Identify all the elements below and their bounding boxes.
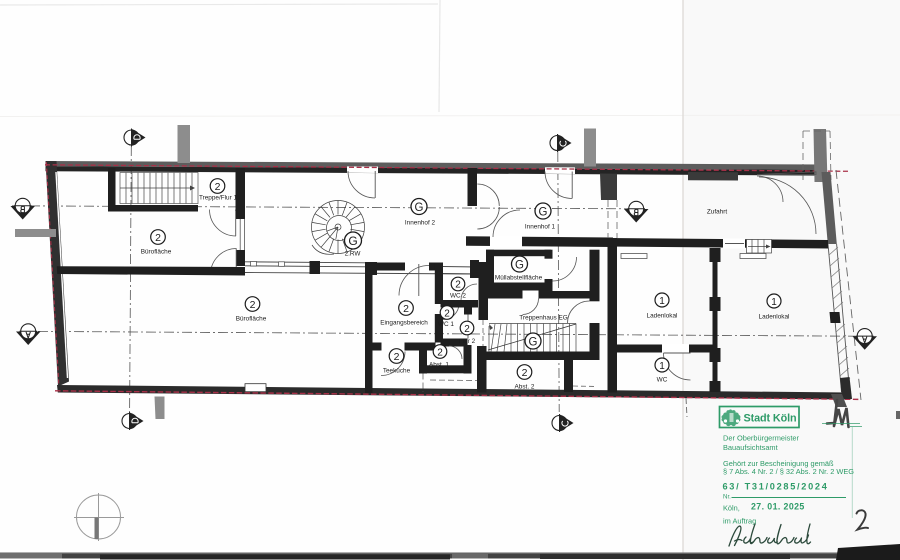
svg-text:2: 2: [464, 324, 470, 335]
svg-text:2: 2: [394, 351, 400, 363]
svg-text:Innenhof 2: Innenhof 2: [405, 220, 436, 227]
svg-text:WC 1: WC 1: [438, 321, 454, 328]
svg-text:Zufahrt: Zufahrt: [707, 209, 727, 216]
svg-text:Treppe/Flur 1: Treppe/Flur 1: [199, 195, 238, 202]
svg-text:2: 2: [522, 367, 528, 379]
svg-text:Eingangsbereich: Eingangsbereich: [380, 320, 428, 327]
svg-text:G: G: [515, 259, 524, 271]
svg-text:Nr.: Nr.: [723, 494, 731, 501]
svg-text:2: 2: [155, 232, 161, 244]
svg-text:Der Oberbürgermeister: Der Oberbürgermeister: [723, 434, 800, 443]
svg-text:Ladenlokal: Ladenlokal: [647, 313, 678, 320]
svg-text:1: 1: [659, 296, 665, 307]
svg-text:Bürofläche: Bürofläche: [141, 249, 172, 256]
svg-text:im Auftrag: im Auftrag: [723, 517, 756, 526]
svg-text:G: G: [539, 206, 548, 218]
svg-text:27. 01. 2025: 27. 01. 2025: [751, 502, 805, 512]
svg-text:2: 2: [455, 280, 461, 291]
svg-text:Flur 2: Flur 2: [459, 338, 476, 345]
svg-text:2.RW: 2.RW: [345, 251, 362, 258]
svg-text:G: G: [415, 202, 424, 214]
svg-text:2: 2: [250, 299, 256, 311]
svg-text:1: 1: [659, 361, 665, 372]
svg-text:2: 2: [215, 181, 221, 193]
svg-text:Treppenhaus EG: Treppenhaus EG: [519, 315, 567, 322]
svg-text:Abst. 1: Abst. 1: [429, 361, 449, 368]
svg-text:Innenhof 1: Innenhof 1: [525, 224, 556, 231]
svg-text:WC 2: WC 2: [450, 293, 466, 300]
svg-text:Abst. 2: Abst. 2: [515, 384, 535, 391]
svg-text:G: G: [348, 234, 357, 248]
svg-text:Müllabstellfläche: Müllabstellfläche: [495, 275, 543, 282]
svg-text:WC: WC: [657, 377, 668, 384]
svg-text:1: 1: [771, 297, 777, 308]
svg-text:G: G: [529, 336, 538, 348]
svg-text:Köln,: Köln,: [723, 504, 740, 513]
svg-text:2: 2: [403, 303, 409, 315]
svg-text:Teeküche: Teeküche: [383, 368, 411, 375]
svg-text:Stadt Köln: Stadt Köln: [744, 413, 797, 425]
svg-text:§ 7 Abs. 4 Nr. 2 / § 32 Abs. 2: § 7 Abs. 4 Nr. 2 / § 32 Abs. 2 Nr. 2 WEG: [723, 467, 854, 476]
svg-text:Ladenlokal: Ladenlokal: [759, 314, 790, 321]
svg-text:Bürofläche: Bürofläche: [236, 316, 267, 323]
svg-text:2: 2: [444, 308, 450, 319]
svg-text:2: 2: [437, 347, 443, 358]
svg-text:Bauaufsichtsamt: Bauaufsichtsamt: [723, 443, 778, 452]
svg-text:63/ T31/0285/2024: 63/ T31/0285/2024: [723, 482, 829, 492]
